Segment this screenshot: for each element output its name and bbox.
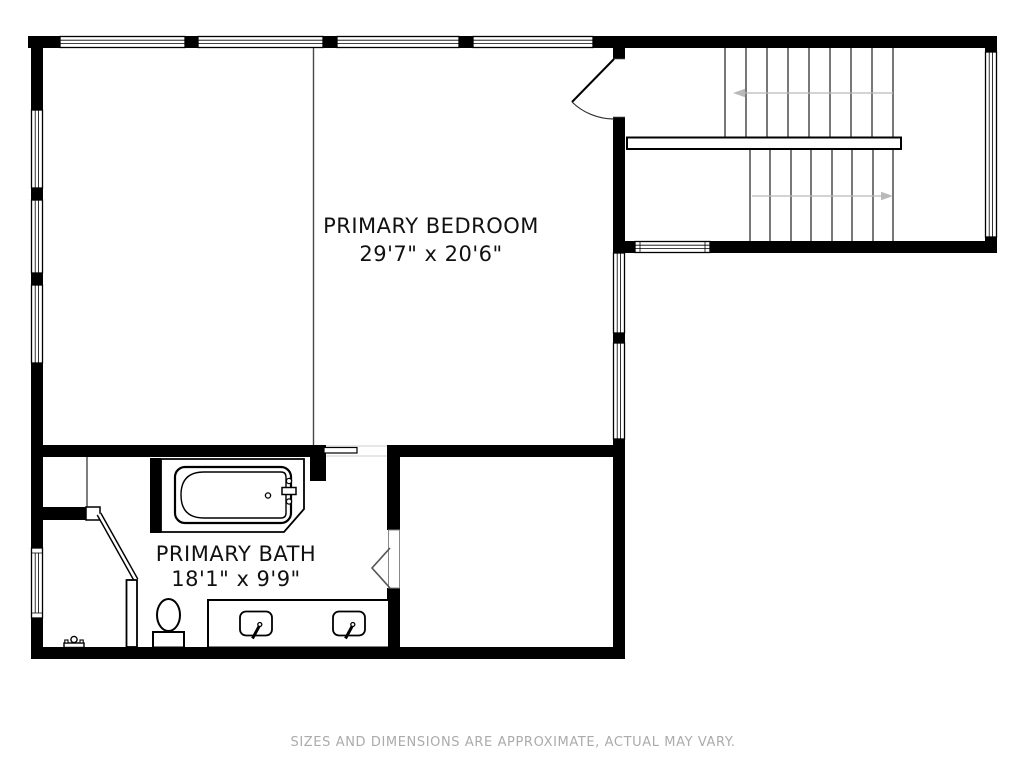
tub-spout — [282, 488, 296, 495]
wall-right — [613, 118, 625, 253]
sink-left — [240, 612, 272, 639]
window — [32, 200, 43, 273]
wall-stair-bottom — [710, 241, 997, 253]
toilet-bowl — [157, 599, 180, 631]
door-panel — [389, 530, 400, 588]
window — [473, 37, 593, 48]
shower-panel — [127, 580, 138, 647]
window — [198, 37, 323, 48]
bathtub — [161, 459, 304, 532]
primary-bath-dimensions: 18'1" x 9'9" — [171, 567, 300, 591]
wall-right — [613, 439, 625, 647]
bath-pocket-door — [324, 445, 387, 457]
window — [337, 37, 459, 48]
wall-bath-wc — [43, 507, 86, 520]
window — [32, 110, 43, 188]
window — [614, 343, 625, 439]
tub-drain — [265, 493, 270, 498]
tub-knob — [286, 478, 291, 483]
wall-bottom — [31, 647, 625, 659]
wall-top-mullion — [185, 36, 198, 48]
door-panel — [324, 448, 357, 454]
window — [32, 548, 43, 618]
toilet-tank — [153, 632, 184, 648]
wall-stair-bottom — [613, 241, 635, 253]
wall-right — [613, 48, 625, 58]
wall-stair-right — [985, 36, 997, 52]
primary-bedroom-label: PRIMARY BEDROOM — [323, 214, 539, 238]
wall-left — [31, 36, 43, 110]
primary-bedroom-dimensions: 29'7" x 20'6" — [359, 242, 502, 266]
disclaimer-text: SIZES AND DIMENSIONS ARE APPROXIMATE, AC… — [291, 735, 736, 750]
window — [32, 285, 43, 363]
wall-top-mullion — [459, 36, 473, 48]
floor-plan: PRIMARY BEDROOM 29'7" x 20'6" PRIMARY BA… — [0, 0, 1024, 768]
door-opening — [613, 58, 625, 118]
wall-closet-top — [387, 445, 613, 457]
wall-top-mullion — [323, 36, 337, 48]
wall-left-mullion — [31, 188, 43, 200]
wall-left-mullion — [31, 273, 43, 285]
tub-knob — [286, 499, 291, 504]
window — [60, 37, 185, 48]
bath-wc-jamb — [86, 507, 100, 520]
vanity — [208, 600, 389, 648]
wall-top-stairhall — [593, 36, 997, 48]
window — [986, 52, 997, 237]
sink-right — [333, 612, 365, 639]
wall-right-mullion — [613, 333, 625, 343]
primary-bath-label: PRIMARY BATH — [156, 542, 316, 566]
wall-bath-top — [31, 445, 310, 457]
window — [614, 253, 625, 333]
wall-closet-left — [387, 457, 400, 530]
wall-tub-alcove — [150, 458, 161, 533]
window — [635, 242, 710, 253]
staircase-landing-rail — [627, 138, 901, 150]
